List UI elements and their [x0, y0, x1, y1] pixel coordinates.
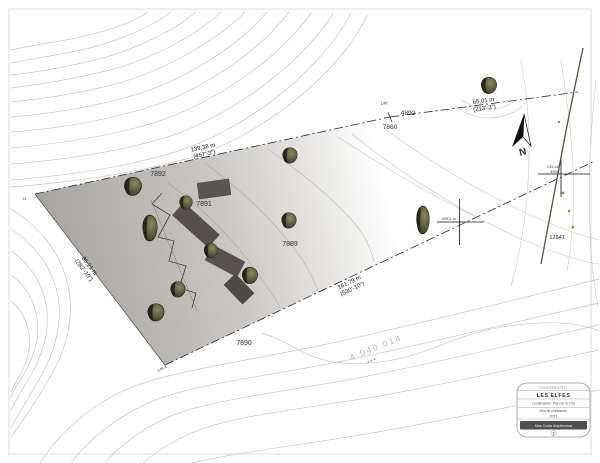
title-block: Levantamientos LES ELFES Localización: P…	[517, 383, 590, 437]
firm-name: Mas Costa Arquitectura	[535, 424, 572, 428]
project-year: 2011	[549, 415, 557, 419]
tree-icon	[124, 177, 141, 195]
contour-line	[11, 209, 70, 437]
parcel-label-4892: 4892	[401, 110, 416, 117]
contour-line	[11, 12, 221, 88]
point-label-south-corner: 149.4	[156, 364, 168, 373]
tree-icon	[282, 213, 297, 229]
sheet-number: 9	[553, 432, 555, 436]
parcel-label-7889: 7889	[282, 241, 298, 248]
cadastral-tick-marks: + + +	[366, 356, 377, 364]
parcel-shaded-area	[35, 92, 595, 365]
tree-icon	[180, 196, 193, 210]
project-name: LES ELFES	[537, 393, 571, 399]
contour-line	[11, 12, 245, 102]
contour-line	[11, 12, 148, 50]
contour-line	[11, 12, 171, 63]
survey-point-a-label: 459,1 m	[442, 216, 457, 221]
parcel-label-7891: 7891	[196, 201, 212, 208]
parcel-label-7860: 7860	[383, 124, 398, 131]
speck	[562, 192, 565, 195]
site-plan-canvas: 139,38 m (457'-3") 65,01 m (213'-3") 161…	[0, 0, 600, 463]
contour-line	[11, 13, 311, 148]
project-location: Localización: Plan de la Cita	[532, 402, 575, 406]
title-block-caption: Año de realización	[540, 409, 568, 413]
tree-icon	[148, 304, 164, 321]
contour-line	[11, 275, 38, 397]
contour-line	[11, 12, 196, 75]
cadastral-reference: 4 040 014	[348, 332, 404, 362]
title-block-header: Levantamientos	[539, 386, 567, 390]
point-label-bend: 148	[380, 100, 388, 106]
tree-icon	[481, 77, 496, 93]
tree-icon	[204, 243, 218, 258]
contour-line	[589, 81, 598, 306]
speck	[558, 121, 560, 123]
tree-icon	[171, 282, 186, 298]
tree-icon	[417, 206, 430, 233]
speck	[568, 210, 570, 212]
parcel-label-12841: 12841	[549, 235, 564, 241]
contour-line	[11, 229, 59, 428]
parcel-label-7890: 7890	[236, 340, 252, 347]
tree-icon	[242, 267, 257, 283]
parcel-label-7892: 7892	[150, 171, 166, 178]
site-plan-sheet: 139,38 m (457'-3") 65,01 m (213'-3") 161…	[0, 0, 600, 463]
contour-line	[11, 12, 267, 117]
point-label-west-corner: 14	[22, 196, 27, 201]
tree-icon	[283, 148, 298, 164]
contour-line	[262, 323, 599, 364]
contour-line	[11, 301, 30, 392]
speck	[572, 226, 575, 229]
tree-icon	[143, 215, 158, 241]
